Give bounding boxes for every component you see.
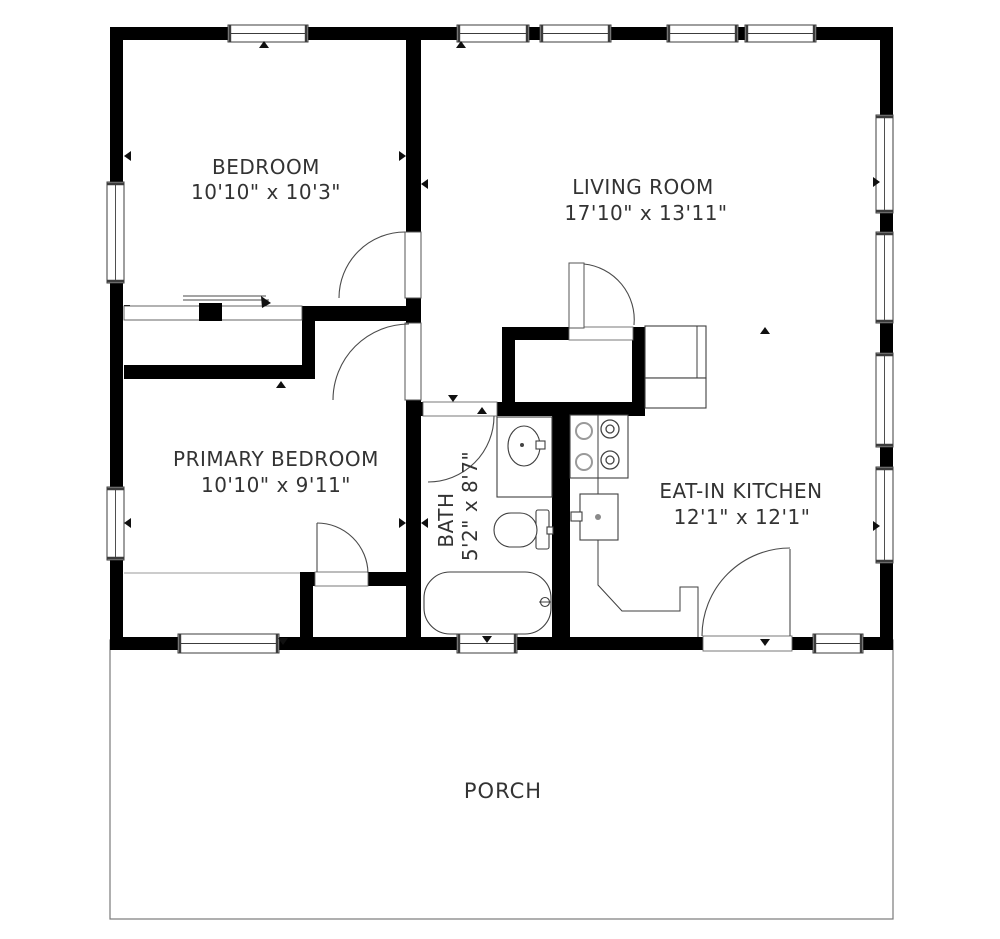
window-right-living-1 <box>876 115 893 213</box>
floor-plan-page: BEDROOM 10'10" x 10'3" LIVING ROOM 17'10… <box>0 0 1000 939</box>
window-left-bedroom <box>107 182 124 283</box>
marker-up-icon <box>276 381 286 388</box>
marker-left-icon <box>124 518 131 528</box>
kitchen-label: EAT-IN KITCHEN <box>659 479 822 503</box>
bath-label: BATH <box>434 492 458 547</box>
bathtub <box>424 572 551 634</box>
window-bottom-kitchen <box>813 634 863 653</box>
bedroom-door <box>339 232 421 298</box>
exterior-walls <box>110 27 893 650</box>
wall-bedroom-bottom <box>302 306 421 321</box>
primary-bedroom-dimensions: 10'10" x 9'11" <box>201 473 351 497</box>
bedroom-label: BEDROOM <box>212 155 320 179</box>
sliding-door-center-post <box>199 303 222 321</box>
window-top-living-4 <box>745 25 816 42</box>
porch-label: PORCH <box>464 779 542 803</box>
windows <box>107 25 893 653</box>
marker-down-icon <box>448 395 458 402</box>
kitchen-dimensions: 12'1" x 12'1" <box>674 505 811 529</box>
marker-up-icon <box>760 327 770 334</box>
marker-right-icon <box>399 518 406 528</box>
window-top-living-3 <box>667 25 738 42</box>
kitchen-sink <box>571 494 618 540</box>
refrigerator <box>645 326 706 408</box>
wall-primary-bedroom-top <box>124 365 315 379</box>
window-left-primary-bedroom <box>107 487 124 560</box>
marker-left-icon <box>421 179 428 189</box>
window-top-bedroom <box>228 25 308 42</box>
window-bottom-primary-bedroom <box>178 634 279 653</box>
bedroom-dimensions: 10'10" x 10'3" <box>191 180 341 204</box>
primary-closet-door <box>315 523 368 586</box>
window-right-living-2 <box>876 232 893 323</box>
hall-closet-door <box>569 263 634 340</box>
stove <box>570 415 628 478</box>
living-room-label: LIVING ROOM <box>572 175 714 199</box>
floor-plan-canvas: BEDROOM 10'10" x 10'3" LIVING ROOM 17'10… <box>0 0 1000 939</box>
living-room-dimensions: 17'10" x 13'11" <box>564 201 727 225</box>
marker-right-icon <box>399 151 406 161</box>
interior-walls <box>124 40 645 637</box>
window-right-kitchen-2 <box>876 467 893 563</box>
bedroom-closet <box>124 296 302 321</box>
window-top-living-1 <box>457 25 529 42</box>
marker-left-icon <box>421 518 428 528</box>
marker-left-icon <box>124 151 131 161</box>
wall-bath-kitchen-divider <box>552 402 570 637</box>
window-right-kitchen-1 <box>876 353 893 447</box>
toilet <box>494 510 553 549</box>
bath-dimensions: 5'2" x 8'7" <box>458 451 482 561</box>
wall-primary-closet-left <box>300 572 313 637</box>
bathroom-sink <box>497 417 552 497</box>
primary-bedroom-door <box>333 323 421 400</box>
window-top-living-2 <box>540 25 611 42</box>
kitchen-entry-door <box>702 548 792 651</box>
primary-bedroom-label: PRIMARY BEDROOM <box>173 447 379 471</box>
